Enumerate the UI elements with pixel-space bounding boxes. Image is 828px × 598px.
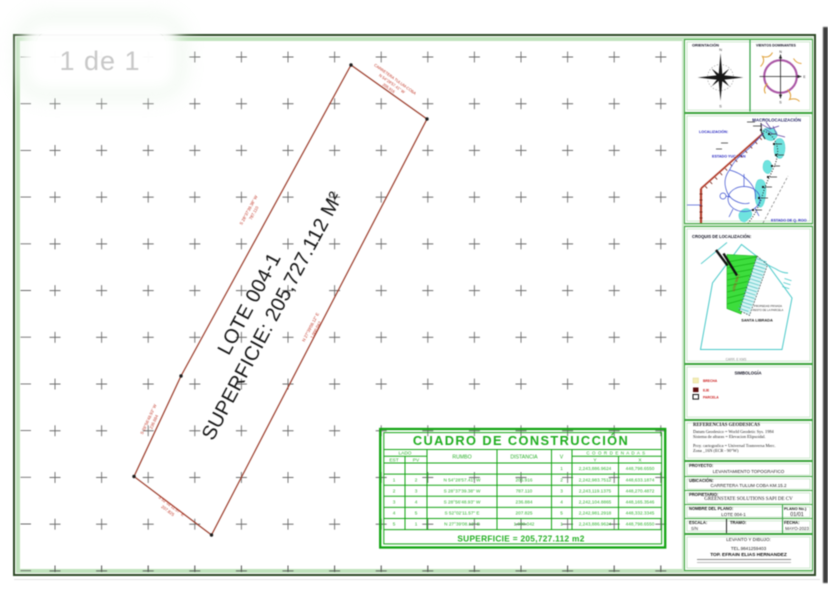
- svg-text:DISTANCIA: DISTANCIA: [510, 454, 538, 460]
- svg-text:EJE: EJE: [703, 388, 710, 392]
- svg-text:X: X: [638, 457, 642, 463]
- svg-text:E: E: [803, 75, 806, 79]
- svg-text:N 54°28'57.41" W: N 54°28'57.41" W: [443, 477, 481, 482]
- svg-text:2: 2: [560, 477, 563, 482]
- svg-text:ORIENTACIÓN: ORIENTACIÓN: [692, 43, 719, 48]
- svg-text:PROPIEDAD PRIVADA: PROPIEDAD PRIVADA: [754, 304, 782, 308]
- svg-text:S: S: [779, 101, 782, 105]
- svg-text:RESTO DE LA PARCELA: RESTO DE LA PARCELA: [753, 308, 784, 312]
- svg-text:3: 3: [415, 488, 418, 493]
- svg-text:C O O R D E N A D A S: C O O R D E N A D A S: [586, 451, 645, 456]
- svg-text:1: 1: [415, 522, 418, 527]
- svg-text:PV: PV: [413, 457, 420, 463]
- svg-text:2,242,983.7512: 2,242,983.7512: [579, 477, 612, 482]
- svg-text:448,798.6550: 448,798.6550: [626, 466, 655, 471]
- svg-text:207.825: 207.825: [516, 511, 533, 516]
- svg-text:448,798.6550: 448,798.6550: [626, 522, 655, 527]
- svg-text:205.916: 205.916: [516, 477, 533, 482]
- svg-text:787.110: 787.110: [516, 488, 533, 493]
- svg-text:3: 3: [560, 488, 563, 493]
- svg-text:EST: EST: [389, 457, 398, 463]
- svg-text:N: N: [779, 50, 782, 54]
- svg-text:2: 2: [393, 488, 396, 493]
- svg-text:LOCALIZACIÓN:: LOCALIZACIÓN:: [699, 129, 728, 134]
- svg-text:SIMBOLOGÍA: SIMBOLOGÍA: [735, 371, 762, 376]
- svg-text:2: 2: [415, 477, 418, 482]
- svg-text:CARR. E KMS: CARR. E KMS: [726, 358, 747, 362]
- svg-text:4: 4: [393, 511, 396, 516]
- svg-text:236.884: 236.884: [516, 500, 533, 505]
- svg-text:LADO: LADO: [398, 451, 411, 457]
- svg-text:2,243,886.9624: 2,243,886.9624: [579, 466, 612, 471]
- svg-text:1: 1: [560, 522, 563, 527]
- svg-text:5: 5: [415, 511, 418, 516]
- svg-text:BRECHA: BRECHA: [703, 379, 718, 383]
- svg-text:5: 5: [560, 511, 563, 516]
- svg-text:4: 4: [415, 500, 418, 505]
- svg-text:Y: Y: [593, 457, 597, 463]
- svg-text:4: 4: [560, 500, 563, 505]
- svg-text:448,332.3345: 448,332.3345: [626, 511, 655, 516]
- svg-text:S: S: [719, 104, 722, 109]
- svg-text:448,633.1874: 448,633.1874: [626, 477, 655, 482]
- svg-text:SUPERFICIE = 205,727.112 m2: SUPERFICIE = 205,727.112 m2: [457, 534, 584, 544]
- svg-text:1: 1: [560, 466, 563, 471]
- svg-text:2,243,886.9624: 2,243,886.9624: [579, 522, 612, 527]
- svg-text:PARCELA: PARCELA: [703, 395, 719, 399]
- svg-text:S 28°37'39.38" W: S 28°37'39.38" W: [444, 488, 481, 493]
- svg-text:N 27°39'08.12" E: N 27°39'08.12" E: [444, 522, 480, 527]
- svg-text:448,270.4872: 448,270.4872: [626, 488, 655, 493]
- svg-text:1,000.042: 1,000.042: [514, 522, 535, 527]
- svg-text:S 28°56'48.93" W: S 28°56'48.93" W: [444, 500, 481, 505]
- svg-text:CUADRO DE CONSTRUCCIÓN: CUADRO DE CONSTRUCCIÓN: [413, 433, 629, 448]
- svg-text:ESTADO DE Q. ROO: ESTADO DE Q. ROO: [771, 218, 807, 222]
- svg-text:N: N: [719, 47, 722, 52]
- svg-text:1: 1: [393, 477, 396, 482]
- svg-text:MACROLOCALIZACIÓN: MACROLOCALIZACIÓN: [752, 117, 801, 122]
- svg-text:SANTA LIBRADA: SANTA LIBRADA: [741, 318, 773, 323]
- svg-text:448,165.3546: 448,165.3546: [626, 500, 655, 505]
- svg-text:5: 5: [393, 522, 396, 527]
- svg-text:2,242,981.2918: 2,242,981.2918: [579, 511, 612, 516]
- svg-text:2,242,104.8865: 2,242,104.8865: [579, 500, 612, 505]
- svg-text:2,243,119.1375: 2,243,119.1375: [579, 488, 612, 493]
- svg-text:VIENTOS DOMINANTES: VIENTOS DOMINANTES: [756, 44, 796, 48]
- svg-text:S 52°02'11.57" E: S 52°02'11.57" E: [444, 511, 479, 516]
- svg-text:RUMBO: RUMBO: [452, 454, 471, 460]
- svg-text:CROQUIS DE LOCALIZACIÓN:: CROQUIS DE LOCALIZACIÓN:: [692, 234, 751, 239]
- svg-text:3: 3: [393, 500, 396, 505]
- svg-text:V: V: [560, 454, 564, 460]
